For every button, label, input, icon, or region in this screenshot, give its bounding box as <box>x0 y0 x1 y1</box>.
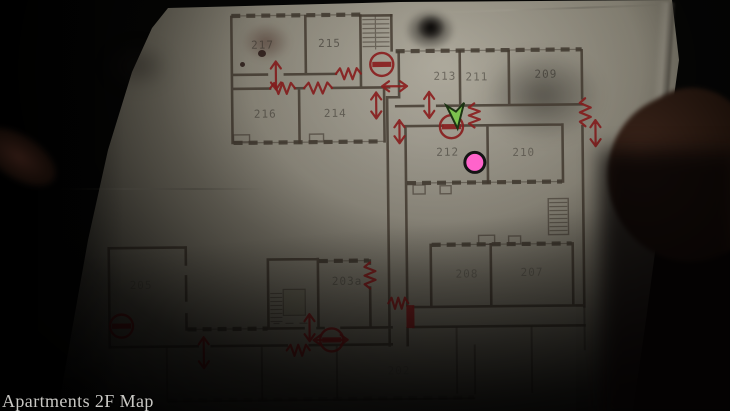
game-screen: 217215216214213211209212210203a208207205… <box>0 0 730 411</box>
pink-dot-marker[interactable] <box>465 152 485 172</box>
marker-overlay <box>0 0 730 411</box>
map-title-label: Apartments 2F Map <box>2 391 154 411</box>
player-marker <box>446 103 466 130</box>
